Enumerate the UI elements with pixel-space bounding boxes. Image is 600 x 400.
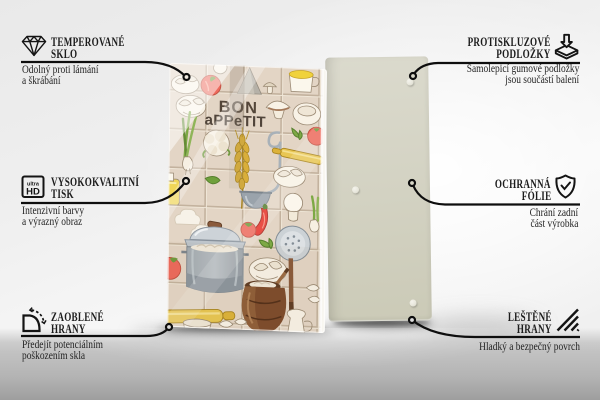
svg-text:HD: HD	[26, 187, 40, 198]
